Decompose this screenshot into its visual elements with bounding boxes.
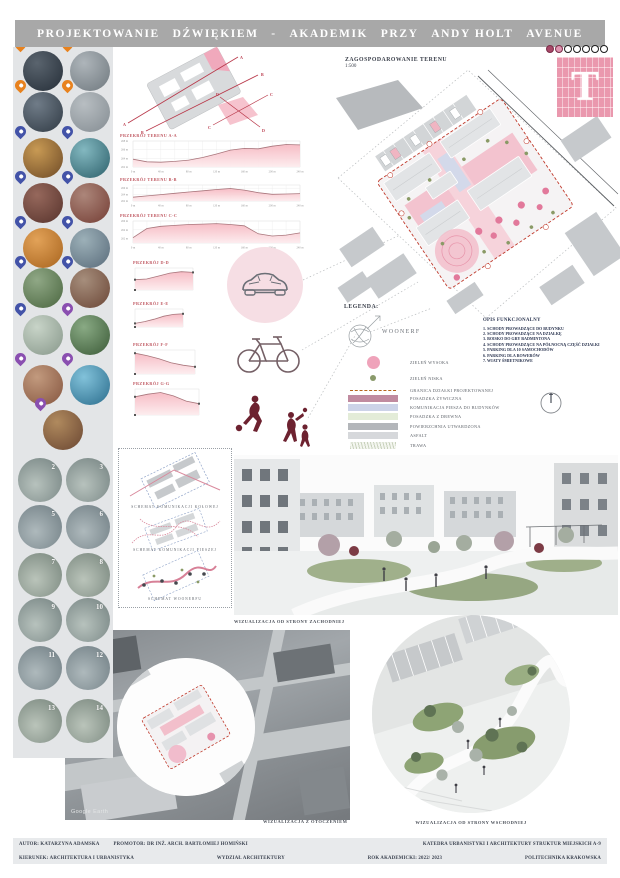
legend-item: ASFALT bbox=[348, 431, 427, 439]
legend-swatch-rect bbox=[348, 404, 398, 411]
reference-photo-circle bbox=[70, 268, 110, 308]
numbered-site-photo-circle: 2 bbox=[18, 458, 62, 502]
svg-text:120 m: 120 m bbox=[213, 205, 221, 208]
legend-swatch-sketch bbox=[348, 442, 398, 449]
title-word: DŹWIĘKIEM bbox=[173, 28, 259, 40]
numbered-site-photo-circle: 14 bbox=[66, 699, 110, 743]
legend-item-label: POSADZKA ŻYWICZNA bbox=[410, 396, 462, 401]
legend-item: KOMUNIKACJA PIESZA DO BUDYNKÓW bbox=[348, 403, 500, 411]
woonerf-sketch-icon bbox=[342, 312, 384, 354]
section-label: C bbox=[270, 92, 273, 97]
legend-swatch-rect bbox=[348, 423, 398, 430]
legend-swatch-rect bbox=[348, 413, 398, 420]
photo-number-label: 10 bbox=[96, 603, 103, 611]
legend-heading: LEGENDA: bbox=[344, 304, 379, 310]
photo-number-label: 14 bbox=[96, 704, 103, 712]
photo-number-label: 7 bbox=[52, 558, 56, 566]
svg-text:266 m: 266 m bbox=[121, 187, 129, 190]
aerial-building bbox=[298, 767, 350, 816]
svg-text:264 m: 264 m bbox=[121, 157, 129, 160]
terrain-profile-plot bbox=[133, 387, 201, 417]
playing-people-icons bbox=[233, 393, 315, 451]
footer-info-bar: AUTOR: KATARZYNA ADAMSKA PROMOTOR: DR IN… bbox=[13, 838, 607, 864]
diagram-caption: SCHEMAT KOMUNIKACJI PIESZEJ bbox=[118, 548, 232, 552]
woonerf-label: WOONERF bbox=[382, 329, 420, 335]
svg-text:262 m: 262 m bbox=[121, 200, 129, 203]
logo-dot bbox=[564, 45, 572, 53]
reference-photo-circle bbox=[70, 315, 110, 355]
east-visualization-caption: WIZUALIZACJA OD STRONY WSCHODNIEJ bbox=[372, 820, 570, 825]
bicycle-icon bbox=[236, 330, 302, 374]
chart-title: PRZEKRÓJ TERENU A-A bbox=[120, 133, 302, 138]
reference-photo-circle bbox=[70, 51, 110, 91]
legend-item-label: POWIERZCHNIA UTWARDZONA bbox=[410, 424, 481, 429]
woonerf-car-badge bbox=[227, 247, 303, 323]
footer-university: POLITECHNIKA KRAKOWSKA bbox=[525, 856, 601, 861]
svg-text:80 m: 80 m bbox=[186, 205, 192, 208]
terrain-profile-plot bbox=[133, 307, 185, 329]
title-word: - bbox=[271, 28, 276, 40]
chart-title: PRZEKRÓJ D-D bbox=[133, 260, 195, 265]
section-profile-chart-f: PRZEKRÓJ F-F bbox=[133, 342, 197, 376]
title-word: AVENUE bbox=[526, 28, 583, 40]
functional-heading: OPIS FUNKCJONALNY bbox=[483, 318, 618, 323]
numbered-site-photo-circle: 5 bbox=[18, 505, 62, 549]
map-pin-icon bbox=[60, 124, 76, 140]
legend-items-list: ZIELEŃ WYSOKAZIELEŃ NISKAGRANICA DZIAŁKI… bbox=[348, 356, 508, 446]
svg-text:262 m: 262 m bbox=[121, 238, 129, 241]
section-label: B bbox=[261, 72, 264, 77]
east-visualization-render bbox=[372, 615, 570, 813]
university-t-logo: T bbox=[557, 57, 613, 117]
numbered-site-photo-circle: 12 bbox=[66, 646, 110, 690]
legend-item: POWIERZCHNIA UTWARDZONA bbox=[348, 422, 481, 430]
chart-title: PRZEKRÓJ G-G bbox=[133, 381, 201, 386]
svg-text:160 m: 160 m bbox=[241, 171, 249, 174]
legend-item-label: ZIELEŃ WYSOKA bbox=[410, 360, 449, 365]
google-earth-watermark: Google Earth bbox=[71, 809, 108, 815]
terrain-profile-plot bbox=[133, 348, 197, 376]
numbered-site-photo-circle: 3 bbox=[66, 458, 110, 502]
reference-photo-circle bbox=[23, 183, 63, 223]
reference-photo-circle bbox=[70, 138, 110, 178]
footer-field: KIERUNEK: ARCHITEKTURA I URBANISTYKA bbox=[19, 856, 134, 861]
chart-title: PRZEKRÓJ TERENU B-B bbox=[120, 177, 302, 182]
section-profile-chart-a: PRZEKRÓJ TERENU A-A262 m264 m266 m268 m0… bbox=[120, 133, 302, 173]
photo-number-label: 6 bbox=[100, 510, 104, 518]
map-pin-icon bbox=[13, 351, 29, 367]
photo-number-label: 13 bbox=[48, 704, 55, 712]
photo-number-label: 11 bbox=[48, 651, 55, 659]
chart-title: PRZEKRÓJ E-E bbox=[133, 301, 185, 306]
title-word: AKADEMIK bbox=[289, 28, 368, 40]
logo-dots-row bbox=[546, 45, 608, 53]
svg-text:0 m: 0 m bbox=[131, 205, 136, 208]
svg-text:262 m: 262 m bbox=[121, 166, 129, 169]
header-title-bar: PROJEKTOWANIE DŹWIĘKIEM - AKADEMIK PRZY … bbox=[15, 20, 605, 47]
numbered-site-photo-circle: 7 bbox=[18, 553, 62, 597]
svg-text:200 m: 200 m bbox=[269, 171, 277, 174]
photo-number-label: 5 bbox=[52, 510, 56, 518]
svg-text:240 m: 240 m bbox=[296, 205, 304, 208]
footer-year: ROK AKADEMICKI: 2022/ 2023 bbox=[368, 856, 442, 861]
svg-text:160 m: 160 m bbox=[241, 205, 249, 208]
svg-text:40 m: 40 m bbox=[158, 171, 164, 174]
svg-text:40 m: 40 m bbox=[158, 205, 164, 208]
map-pin-icon bbox=[60, 351, 76, 367]
legend-item: POSADZKA ŻYWICZNA bbox=[348, 394, 462, 402]
map-pin-icon bbox=[60, 214, 76, 230]
reference-photo-circle bbox=[23, 92, 63, 132]
legend-item-label: KOMUNIKACJA PIESZA DO BUDYNKÓW bbox=[410, 405, 500, 410]
legend-item-label: POSADZKA Z DREWNA bbox=[410, 414, 461, 419]
map-pin-icon bbox=[60, 169, 76, 185]
poster-board: PROJEKTOWANIE DŹWIĘKIEM - AKADEMIK PRZY … bbox=[0, 0, 620, 878]
map-pin-icon bbox=[60, 301, 76, 317]
numbered-site-photo-circle: 10 bbox=[66, 598, 110, 642]
functional-description: OPIS FUNKCJONALNY 1. SCHODY PROWADZĄCE D… bbox=[483, 318, 618, 363]
photo-number-label: 2 bbox=[52, 463, 56, 471]
functional-item: 7. WIATY ŚMIETNIKOWE bbox=[483, 358, 618, 363]
legend-item-label: GRANICA DZIAŁKI PROJEKTOWANEJ bbox=[410, 388, 493, 393]
reference-photo-circle bbox=[43, 410, 83, 450]
west-visualization-caption: WIZUALIZACJA OD STRONY ZACHODNIEJ bbox=[234, 619, 344, 624]
logo-dot bbox=[591, 45, 599, 53]
map-pin-icon bbox=[13, 214, 29, 230]
legend-item: ZIELEŃ WYSOKA bbox=[348, 358, 449, 366]
reference-photo-circle bbox=[70, 183, 110, 223]
legend-item: ZIELEŃ NISKA bbox=[348, 374, 443, 382]
numbered-site-photo-circle: 11 bbox=[18, 646, 62, 690]
photo-number-label: 9 bbox=[52, 603, 56, 611]
section-label: A bbox=[240, 55, 243, 60]
svg-text:264 m: 264 m bbox=[121, 229, 129, 232]
section-profile-chart-e: PRZEKRÓJ E-E bbox=[133, 301, 185, 329]
section-profile-chart-b: PRZEKRÓJ TERENU B-B262 m264 m266 m0 m40 … bbox=[120, 177, 302, 207]
section-label: D bbox=[216, 92, 219, 97]
legend-item: GRANICA DZIAŁKI PROJEKTOWANEJ bbox=[348, 386, 493, 394]
west-visualization-render bbox=[234, 455, 618, 615]
section-label: C bbox=[208, 125, 211, 130]
west-render-drawing bbox=[234, 455, 618, 615]
legend-item: TRAWA bbox=[348, 441, 426, 449]
chart-title: PRZEKRÓJ F-F bbox=[133, 342, 197, 347]
legend-swatch-dot bbox=[348, 375, 398, 381]
svg-text:240 m: 240 m bbox=[296, 247, 304, 250]
diagram-caption: SCHEMAT WOONERFU bbox=[118, 597, 232, 601]
svg-text:0 m: 0 m bbox=[131, 171, 136, 174]
legend-item: POSADZKA Z DREWNA bbox=[348, 412, 461, 420]
north-indicator-icon bbox=[540, 392, 562, 414]
svg-text:120 m: 120 m bbox=[213, 247, 221, 250]
legend-swatch-rect bbox=[348, 395, 398, 402]
map-pin-icon bbox=[13, 301, 29, 317]
title-word: ANDY HOLT bbox=[431, 28, 513, 40]
legend-swatch-rect bbox=[348, 432, 398, 439]
legend-item-label: ASFALT bbox=[410, 433, 427, 438]
footer-department: KATEDRA URBANISTYKI I ARCHITEKTURY STRUK… bbox=[423, 842, 601, 847]
masterplan-mini-drawing bbox=[117, 658, 255, 796]
svg-text:266 m: 266 m bbox=[121, 149, 129, 152]
legend-swatch-dash bbox=[348, 390, 398, 391]
terrain-profile-plot: 262 m264 m266 m268 m0 m40 m80 m120 m160 … bbox=[120, 139, 302, 173]
svg-text:0 m: 0 m bbox=[131, 247, 136, 250]
legend-item-label: ZIELEŃ NISKA bbox=[410, 376, 443, 381]
diagram-caption: SCHEMAT KOMUNIKACJI KOŁOWEJ bbox=[118, 505, 232, 509]
reference-photo-circle bbox=[23, 51, 63, 91]
east-render-drawing bbox=[372, 615, 570, 813]
svg-text:268 m: 268 m bbox=[121, 140, 129, 143]
vehicular-circulation-diagram bbox=[124, 456, 226, 504]
title-word: PROJEKTOWANIE bbox=[37, 28, 160, 40]
logo-dot bbox=[546, 45, 554, 53]
pedestrian-circulation-diagram bbox=[124, 513, 226, 547]
t-logo-letter: T bbox=[571, 66, 599, 108]
section-location-sketch: A A B B C C D D bbox=[118, 53, 308, 135]
section-label: A bbox=[123, 122, 126, 127]
masterplan-inset-circle bbox=[117, 658, 255, 796]
svg-text:80 m: 80 m bbox=[186, 247, 192, 250]
numbered-site-photo-circle: 8 bbox=[66, 553, 110, 597]
section-profile-chart-g: PRZEKRÓJ G-G bbox=[133, 381, 201, 417]
legend-swatch-circle bbox=[348, 356, 398, 369]
logo-dot bbox=[600, 45, 608, 53]
footer-promoter: PROMOTOR: DR INŻ. ARCH. BARTŁOMIEJ HOMIŃ… bbox=[114, 842, 248, 847]
reference-photo-circle bbox=[70, 228, 110, 268]
svg-text:80 m: 80 m bbox=[186, 171, 192, 174]
reference-photo-circle bbox=[70, 92, 110, 132]
numbered-site-photo-circle: 6 bbox=[66, 505, 110, 549]
logo-dot bbox=[555, 45, 563, 53]
woonerf-scheme-diagram bbox=[124, 556, 226, 596]
reference-photo-circle bbox=[23, 268, 63, 308]
reference-photo-circle bbox=[23, 228, 63, 268]
terrain-profile-plot: 262 m264 m266 m0 m40 m80 m120 m160 m200 … bbox=[120, 183, 302, 207]
title-word: PRZY bbox=[381, 28, 419, 40]
svg-text:240 m: 240 m bbox=[296, 171, 304, 174]
footer-faculty: WYDZIAŁ ARCHITEKTURY bbox=[217, 856, 285, 861]
numbered-site-photo-circle: 13 bbox=[18, 699, 62, 743]
svg-text:266 m: 266 m bbox=[121, 220, 129, 223]
section-profile-chart-c: PRZEKRÓJ TERENU C-C262 m264 m266 m0 m40 … bbox=[120, 213, 302, 249]
footer-author: AUTOR: KATARZYNA ADAMSKA bbox=[19, 842, 100, 847]
reference-photo-circle bbox=[70, 365, 110, 405]
section-profile-chart-d: PRZEKRÓJ D-D bbox=[133, 260, 195, 292]
reference-photo-circle bbox=[23, 138, 63, 178]
svg-text:200 m: 200 m bbox=[269, 205, 277, 208]
reference-photo-circle bbox=[23, 315, 63, 355]
terrain-profile-plot bbox=[133, 266, 195, 292]
logo-dot bbox=[582, 45, 590, 53]
photo-number-label: 12 bbox=[96, 651, 103, 659]
map-pin-icon bbox=[13, 169, 29, 185]
car-icon bbox=[239, 270, 291, 300]
photo-number-label: 8 bbox=[100, 558, 104, 566]
photo-number-label: 3 bbox=[100, 463, 104, 471]
svg-text:40 m: 40 m bbox=[158, 247, 164, 250]
siteplan-title: ZAGOSPODAROWANIE TERENU bbox=[345, 57, 447, 63]
svg-text:160 m: 160 m bbox=[241, 247, 249, 250]
logo-dot bbox=[573, 45, 581, 53]
numbered-site-photo-circle: 9 bbox=[18, 598, 62, 642]
svg-text:120 m: 120 m bbox=[213, 171, 221, 174]
chart-title: PRZEKRÓJ TERENU C-C bbox=[120, 213, 302, 218]
reference-photos-sidebar: 23567891011121314 bbox=[13, 47, 113, 758]
terrain-profile-plot: 262 m264 m266 m0 m40 m80 m120 m160 m200 … bbox=[120, 219, 302, 249]
legend-item-label: TRAWA bbox=[410, 443, 426, 448]
map-pin-icon bbox=[13, 124, 29, 140]
svg-text:264 m: 264 m bbox=[121, 194, 129, 197]
